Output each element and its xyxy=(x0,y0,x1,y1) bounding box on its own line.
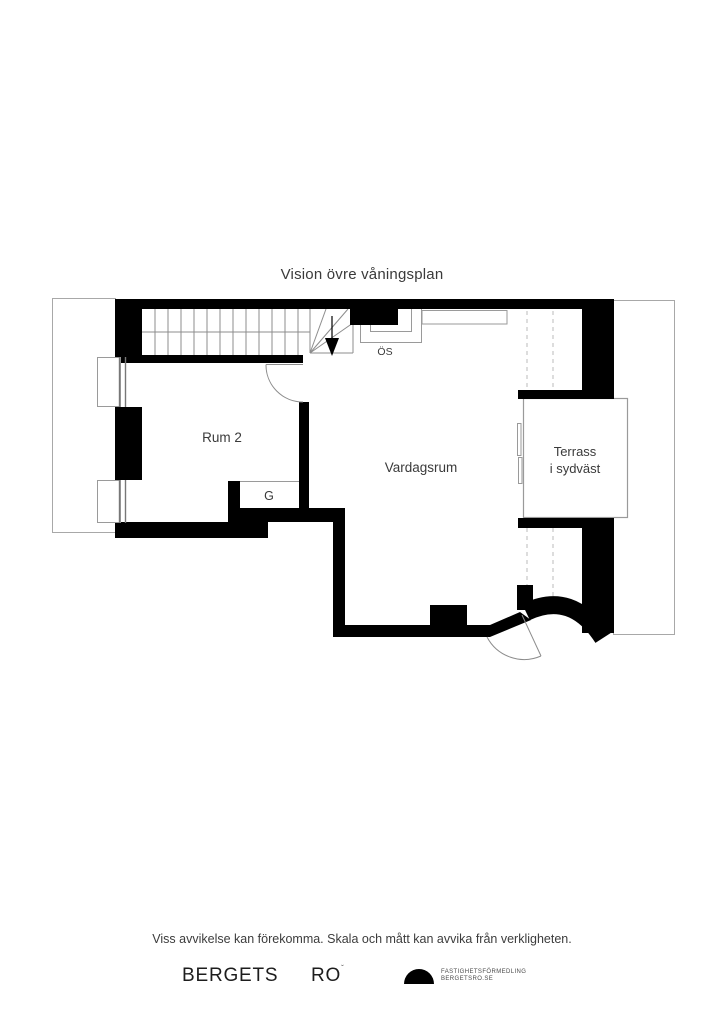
room-label-terrass-line2: i sydväst xyxy=(550,461,601,476)
agency-logo: FASTIGHETSFÖRMEDLING BERGETSRO.SE xyxy=(404,969,526,984)
half-dome-icon xyxy=(404,969,434,984)
brand-ro-text: RO xyxy=(311,965,341,986)
agency-name: FASTIGHETSFÖRMEDLING xyxy=(441,969,526,976)
room-label-oppen-spis: ÖS xyxy=(377,346,392,358)
brand-logo-ro: ROˇ xyxy=(311,965,345,987)
chimney xyxy=(350,299,398,325)
room-label-vardagsrum: Vardagsrum xyxy=(385,460,458,475)
brand-ro-mark: ˇ xyxy=(341,964,344,973)
room-label-terrass-line1: Terrass xyxy=(554,444,597,459)
staircase xyxy=(142,309,353,356)
wall-rum2-bottom xyxy=(115,522,268,538)
room-label-garderob: G xyxy=(264,489,274,503)
terrace-door-panel xyxy=(518,424,522,456)
agency-url: BERGETSRO.SE xyxy=(441,976,526,983)
wall-interior xyxy=(299,402,309,522)
wall-pillar xyxy=(430,605,467,625)
footer-disclaimer: Viss avvikelse kan förekomma. Skala och … xyxy=(0,932,724,946)
wall-left-upper xyxy=(115,299,142,357)
wall-bottom xyxy=(333,625,490,637)
floor-plan: Rum 2 Vardagsrum Terrass i sydväst G ÖS xyxy=(0,0,724,1024)
wall-right-upper xyxy=(582,299,614,392)
brand-logo-bergets: BERGETS xyxy=(182,965,278,987)
wall-under-stair xyxy=(115,355,303,363)
wall-shelf xyxy=(422,311,507,325)
door-rum2 xyxy=(266,365,303,403)
room-label-rum2: Rum 2 xyxy=(202,430,242,445)
